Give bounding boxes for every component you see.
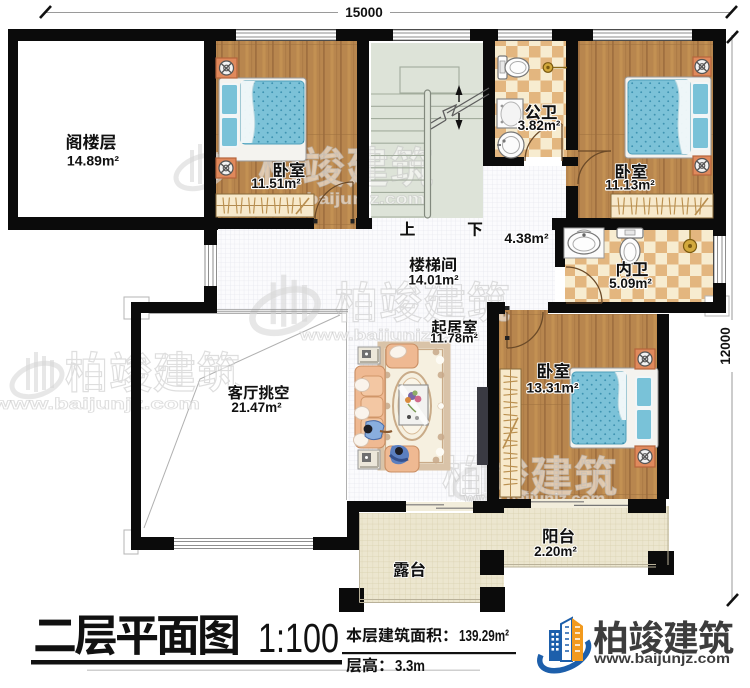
svg-text:3.3m: 3.3m [395,658,425,675]
svg-text:11.13m²: 11.13m² [605,177,655,192]
svg-text:2.20m²: 2.20m² [534,544,577,559]
svg-text:4.38m²: 4.38m² [504,230,549,246]
svg-text:11.78m²: 11.78m² [430,330,478,345]
svg-text:www.baijunjz.com: www.baijunjz.com [593,651,730,666]
svg-text:11.51m²: 11.51m² [251,176,301,191]
svg-text:3.82m²: 3.82m² [518,118,561,133]
svg-text:13.31m²: 13.31m² [526,380,578,396]
svg-text:12000: 12000 [718,327,733,365]
svg-text:139.29m²: 139.29m² [459,628,509,645]
svg-text:1:100: 1:100 [258,615,339,661]
svg-text:14.01m²: 14.01m² [408,272,459,287]
svg-text:5.09m²: 5.09m² [609,276,652,291]
svg-text:15000: 15000 [345,5,383,20]
svg-text:21.47m²: 21.47m² [231,400,282,415]
svg-text:14.89m²: 14.89m² [67,153,119,169]
svg-text:www.baijunjz.com: www.baijunjz.com [0,396,200,413]
